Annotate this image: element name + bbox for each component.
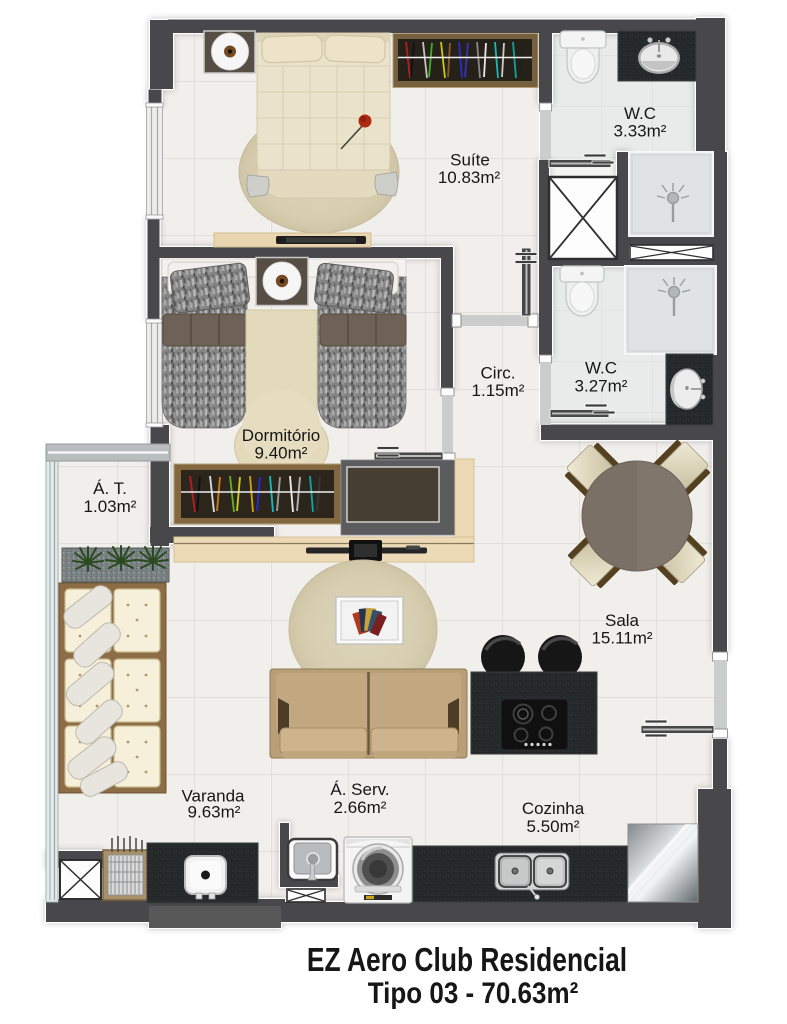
svg-text:3.33m²: 3.33m² xyxy=(614,122,667,141)
svg-text:Tipo 03 - 70.63m²: Tipo 03 - 70.63m² xyxy=(368,976,578,1009)
svg-text:EZ Aero Club Residencial: EZ Aero Club Residencial xyxy=(307,942,627,978)
svg-text:1.03m²: 1.03m² xyxy=(84,497,137,516)
svg-text:Dormitório: Dormitório xyxy=(242,426,320,445)
svg-text:3.27m²: 3.27m² xyxy=(575,377,628,396)
svg-text:W.C: W.C xyxy=(585,359,617,378)
svg-text:Á. Serv.: Á. Serv. xyxy=(330,780,389,799)
svg-text:15.11m²: 15.11m² xyxy=(591,629,652,648)
svg-text:Á. T.: Á. T. xyxy=(93,479,127,498)
svg-text:9.40m²: 9.40m² xyxy=(255,444,308,463)
svg-text:Suíte: Suíte xyxy=(450,151,490,170)
svg-text:Cozinha: Cozinha xyxy=(522,799,585,818)
svg-text:Circ.: Circ. xyxy=(481,364,516,383)
svg-text:Sala: Sala xyxy=(605,611,640,630)
svg-text:2.66m²: 2.66m² xyxy=(334,798,387,817)
svg-text:10.83m²: 10.83m² xyxy=(438,168,501,187)
svg-text:W.C: W.C xyxy=(624,104,656,123)
svg-text:5.50m²: 5.50m² xyxy=(527,817,580,836)
svg-text:1.15m²: 1.15m² xyxy=(472,381,525,400)
svg-text:9.63m²: 9.63m² xyxy=(188,803,241,822)
